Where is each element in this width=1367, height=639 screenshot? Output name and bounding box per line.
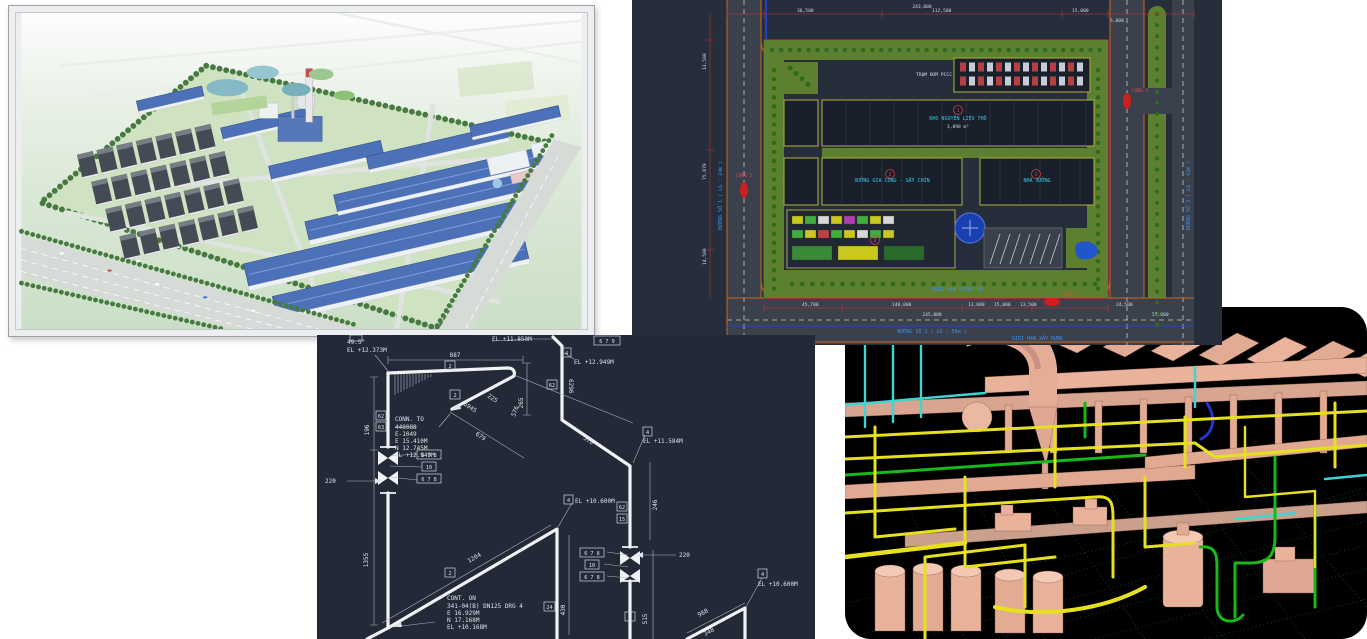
plot-num-2: 2 — [889, 172, 892, 178]
warehouse-raw-material — [822, 100, 1094, 146]
conn-line-3: E-1049 — [395, 431, 417, 438]
plant-3d-model — [845, 307, 1367, 639]
cont-line-2: 341-04(B) DN125 DRG 4 — [447, 603, 523, 610]
conn-line-4: E 15.410M — [395, 438, 428, 445]
tag-2d: 2 — [628, 615, 631, 621]
isometric-drawing: 6 7 9 2 2 4 62 62 63 6 7 8 10 6 7 8 4 62… — [317, 335, 815, 639]
median-strip — [1148, 6, 1166, 338]
el-10600-b: EL +10.600M — [758, 581, 798, 588]
aux-building-1 — [784, 100, 818, 146]
dim-887: 887 — [450, 352, 461, 359]
dim-left-2: 75,870 — [702, 163, 708, 180]
pccc-label: TRẠM BƠM PCCC — [916, 72, 952, 78]
tag-4d: 4 — [761, 572, 764, 578]
road-left-label: ĐƯỜNG SỐ 1 ( LG : 24m ) — [717, 161, 724, 230]
sphere-vessel — [962, 402, 992, 432]
dim-515: 515 — [642, 613, 649, 624]
cont-line-4: N 17.168M — [447, 617, 480, 624]
plot-num-3: 3 — [1035, 172, 1038, 178]
iso-background — [317, 335, 815, 639]
tag-4b: 4 — [646, 430, 649, 436]
treatment-area — [787, 210, 985, 268]
road-right-label: ĐƯỜNG SỐ 3 ( LG : 42m ) — [1185, 161, 1192, 230]
conn-line-6: EL +12.949M — [395, 452, 435, 459]
aerial-render — [15, 12, 588, 330]
dim-top-4: 5,000 — [1110, 18, 1124, 24]
dim-6296: 6296 — [567, 379, 574, 394]
dim-220-right: 220 — [679, 552, 690, 559]
dim-bot-3: 13,000 — [968, 302, 985, 308]
tag-4a: 4 — [565, 351, 568, 357]
tag-63: 63 — [378, 425, 384, 431]
tag-10-r: 10 — [589, 563, 595, 569]
conn-line-1: CONN. TO — [395, 416, 424, 423]
cont-line-3: E 16.929M — [447, 610, 480, 617]
tag-62c: 62 — [619, 505, 625, 511]
conn-line-2: 448088 — [395, 424, 417, 431]
plot-num-4: 4 — [874, 238, 877, 244]
tag-24: 24 — [546, 605, 552, 611]
site-plan-panel: 243,000 36,500 112,500 15,000 5,000 13,5… — [632, 0, 1222, 349]
tag-678-r2: 6 7 8 — [584, 575, 600, 581]
dim-bot-2: 148,000 — [892, 302, 912, 308]
dim-top-3: 15,000 — [1072, 8, 1089, 14]
note-blue-2: GIỚI HẠN ĐƯỜNG ĐỎ — [932, 285, 983, 293]
isometric-drawing-panel: 6 7 9 2 2 4 62 62 63 6 7 8 10 6 7 8 4 62… — [317, 335, 815, 639]
road-bottom-label: ĐƯỜNG SỐ 2 ( LG : 56m ) — [897, 328, 966, 335]
site-plan: 243,000 36,500 112,500 15,000 5,000 13,5… — [632, 0, 1222, 345]
el-10600-a: EL +10.600M — [575, 498, 615, 505]
dim-left-1: 13,500 — [702, 53, 708, 70]
dim-top-2: 112,500 — [932, 8, 952, 14]
tag-678-l2: 6 7 8 — [421, 477, 437, 483]
dim-430: 430 — [560, 604, 567, 615]
dim-1355: 1355 — [363, 552, 370, 567]
foundation-block — [1263, 559, 1315, 593]
process-tank — [1163, 523, 1203, 607]
angle-label: 49.5° — [347, 339, 365, 346]
bldg1-area: 3,898 m² — [947, 124, 969, 130]
dim-246: 246 — [652, 499, 659, 510]
el-11850: EL +11.850M — [492, 336, 532, 343]
fountain — [493, 179, 503, 189]
dim-total-top: 243,000 — [912, 4, 932, 10]
aerial-render-panel — [8, 5, 595, 337]
tag-679: 6 7 9 — [599, 339, 615, 345]
bldg1-label: KHO NGUYÊN LIỆU THÔ — [929, 114, 986, 122]
cont-line-5: EL +10.168M — [447, 624, 487, 631]
el-11584: EL +11.584M — [643, 438, 683, 445]
tag-678-r1: 6 7 8 — [584, 551, 600, 557]
plot-num-1: 1 — [957, 108, 960, 114]
tag-10-l: 10 — [426, 465, 432, 471]
gate3-label: CỔNG 3 — [1132, 87, 1149, 94]
conn-line-5: N 12.745M — [395, 445, 428, 452]
dim-bot-5: 13,500 — [1020, 302, 1037, 308]
cont-line-1: CONT. ON — [447, 595, 476, 602]
tag-2c: 2 — [448, 571, 451, 577]
dim-left-3: 14,500 — [702, 248, 708, 265]
tag-62a: 62 — [549, 383, 555, 389]
tag-4c: 4 — [567, 498, 570, 504]
gate1-label: CỔNG 1 — [1062, 291, 1079, 298]
aux-building-2 — [784, 158, 818, 205]
dim-220-left: 220 — [325, 478, 336, 485]
foundation-block-top — [1275, 547, 1295, 561]
tag-2a: 2 — [448, 364, 451, 370]
plant-3d-model-panel — [845, 307, 1367, 639]
dim-bot-4: 15,000 — [994, 302, 1011, 308]
dim-bot-1: 45,700 — [802, 302, 819, 308]
el-12373: EL +12.373M — [347, 347, 387, 354]
dim-top-1: 36,500 — [797, 8, 814, 14]
dim-total-bottom: 245,000 — [922, 312, 942, 318]
dim-265: 265 — [518, 397, 525, 408]
collage-stage: 243,000 36,500 112,500 15,000 5,000 13,5… — [0, 0, 1367, 639]
dim-bot-7: 57,000 — [1152, 312, 1169, 318]
bldg2-label: XƯỞNG GIA CÔNG - SẤY CHÍN — [854, 176, 929, 184]
el-12949: EL +12.949M — [574, 359, 614, 366]
dim-196: 196 — [364, 424, 371, 435]
gate2-label: CỔNG 2 — [736, 172, 753, 179]
tag-15: 15 — [619, 517, 625, 523]
tag-2b: 2 — [453, 393, 456, 399]
tag-62b: 62 — [378, 414, 384, 420]
dim-bot-6: 24,500 — [1116, 302, 1133, 308]
note-blue-1: GIỚI HẠN XÂY DỰNG — [1012, 335, 1063, 342]
